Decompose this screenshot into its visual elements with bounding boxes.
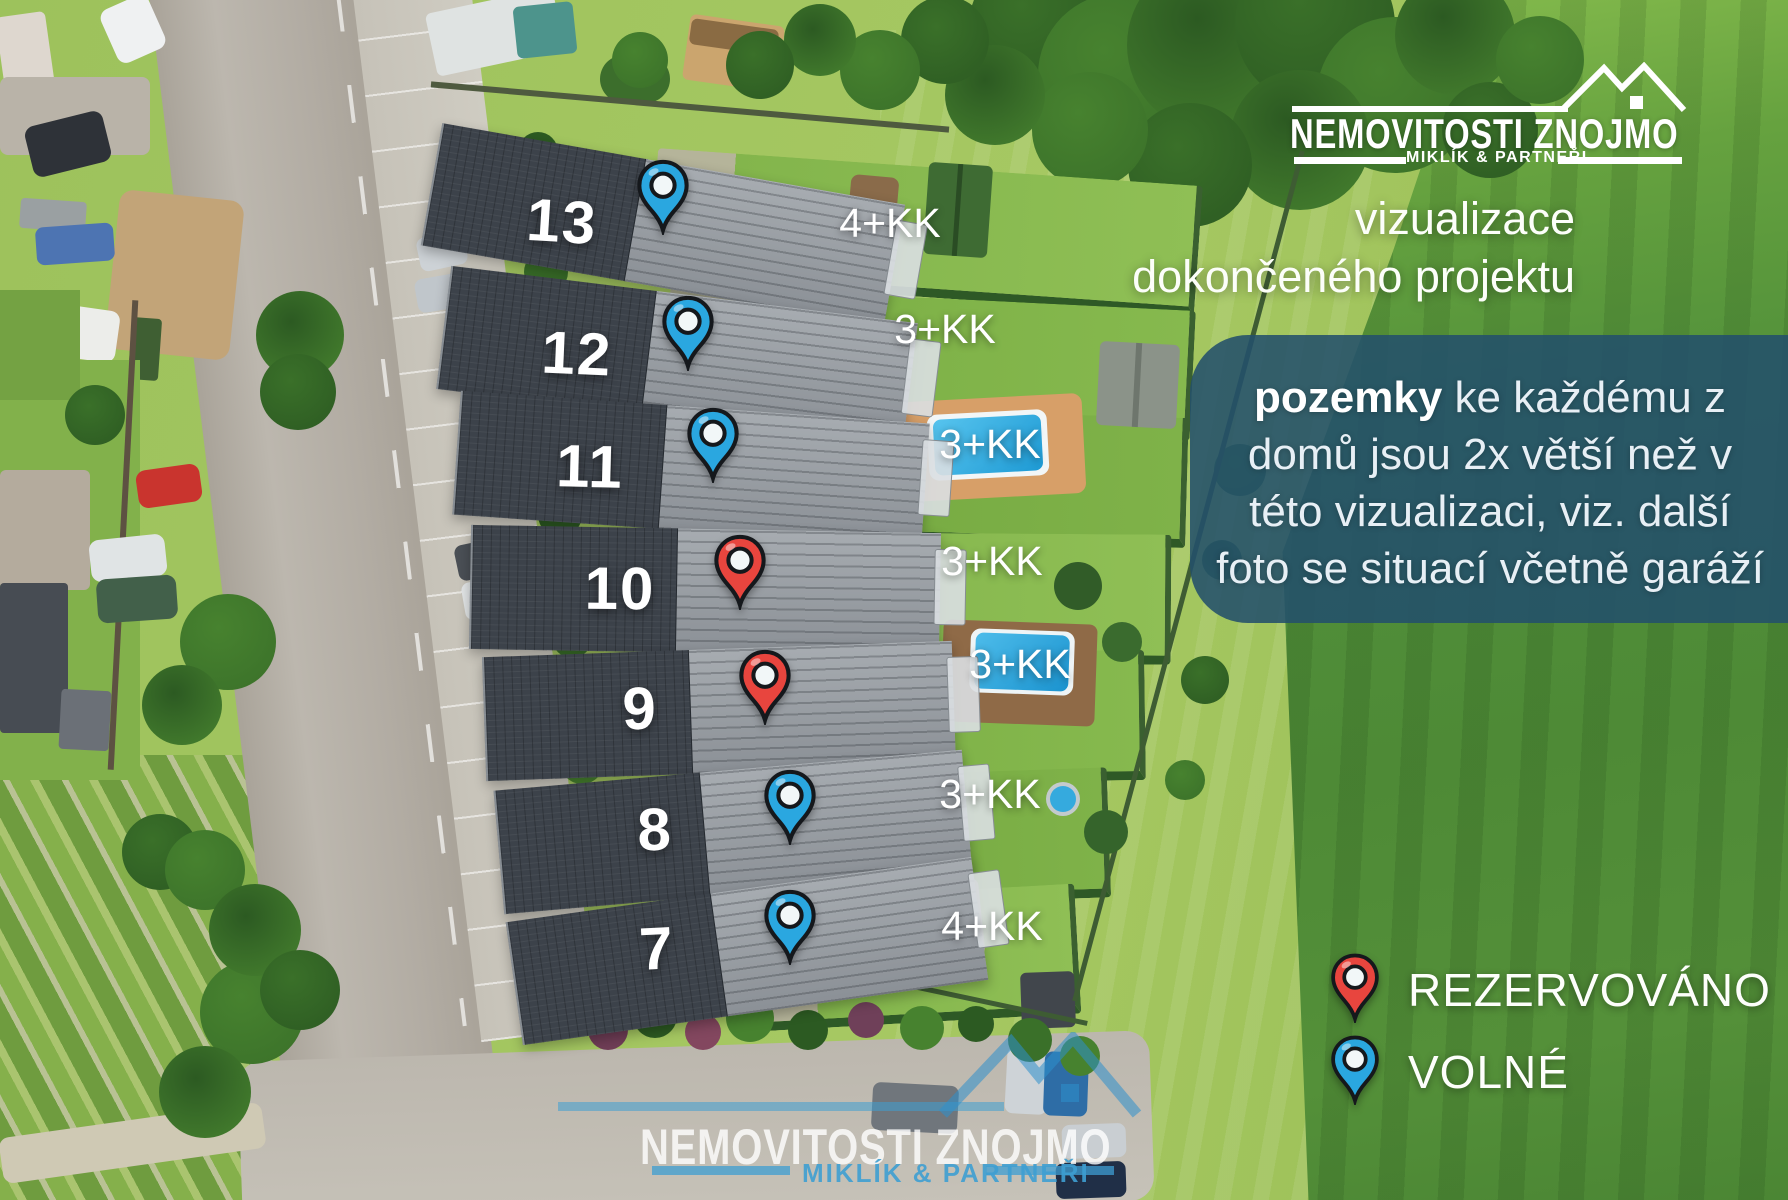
- logo-sub-rule-right: [1558, 157, 1682, 164]
- legend-label: VOLNÉ: [1408, 1045, 1569, 1099]
- layout-label: 4+KK: [790, 200, 990, 247]
- house-number: 9: [565, 673, 716, 744]
- tagline: vizualizace dokončeného projektu: [1132, 190, 1575, 306]
- info-panel-text: pozemky ke každému z domů jsou 2x větší …: [1190, 369, 1788, 597]
- legend-item-rezervovano: REZERVOVÁNO: [1330, 952, 1771, 1028]
- legend: REZERVOVÁNO VOLNÉ: [1330, 952, 1771, 1116]
- legend-pin-rezervovano: [1330, 953, 1380, 1028]
- tagline-line1: vizualizace: [1132, 190, 1575, 248]
- house-number: 12: [501, 316, 654, 391]
- pin-icon: [1330, 953, 1380, 1023]
- aerial-site-map: 13 4+KK12 3+KK11 3+KK10 3+KK9 3+KK8 3+KK…: [0, 0, 1788, 1200]
- house-pin-rezervovano: [713, 534, 767, 615]
- layout-label: 3+KK: [892, 538, 1092, 585]
- info-line2: domů jsou 2x větší než v: [1190, 426, 1788, 483]
- watermark-rule-left: [652, 1166, 790, 1175]
- house-number: 7: [580, 910, 733, 986]
- legend-item-volne: VOLNÉ: [1330, 1034, 1771, 1110]
- watermark-rule-right: [986, 1166, 1114, 1175]
- watermark-roof-icon: [933, 1032, 1145, 1118]
- layout-label: 3+KK: [890, 421, 1090, 468]
- pin-icon: [763, 889, 817, 965]
- pin-icon: [738, 649, 792, 725]
- roof-icon: [1556, 62, 1690, 116]
- info-line3: této vizualizaci, viz. další: [1190, 483, 1788, 540]
- info-line1: pozemky ke každému z: [1190, 369, 1788, 426]
- layout-label: 3+KK: [920, 641, 1120, 688]
- legend-label: REZERVOVÁNO: [1408, 963, 1771, 1017]
- legend-pin-volne: [1330, 1035, 1380, 1110]
- house-pin-volne: [763, 889, 817, 970]
- pin-icon: [686, 407, 740, 483]
- layout-label: 4+KK: [892, 903, 1092, 950]
- brand-subtitle: MIKLÍK & PARTNEŘI: [1406, 149, 1560, 167]
- house-number: 8: [579, 793, 731, 867]
- pin-icon: [636, 159, 690, 235]
- layout-label: 3+KK: [845, 306, 1045, 353]
- tagline-line2: dokončeného projektu: [1132, 248, 1575, 306]
- house-pin-rezervovano: [738, 649, 792, 730]
- house-pin-volne: [661, 295, 715, 376]
- pin-icon: [661, 295, 715, 371]
- pin-icon: [763, 769, 817, 845]
- pin-icon: [713, 534, 767, 610]
- house-number: 11: [514, 430, 666, 503]
- logo-sub-rule-left: [1294, 157, 1406, 164]
- house-pin-volne: [686, 407, 740, 488]
- house-number: 10: [545, 554, 695, 624]
- house-pin-volne: [763, 769, 817, 850]
- info-line4: foto se situací včetně garáží: [1190, 540, 1788, 597]
- house-pin-volne: [636, 159, 690, 240]
- pin-icon: [1330, 1035, 1380, 1105]
- house-number: 13: [485, 182, 639, 260]
- layout-label: 3+KK: [890, 771, 1090, 818]
